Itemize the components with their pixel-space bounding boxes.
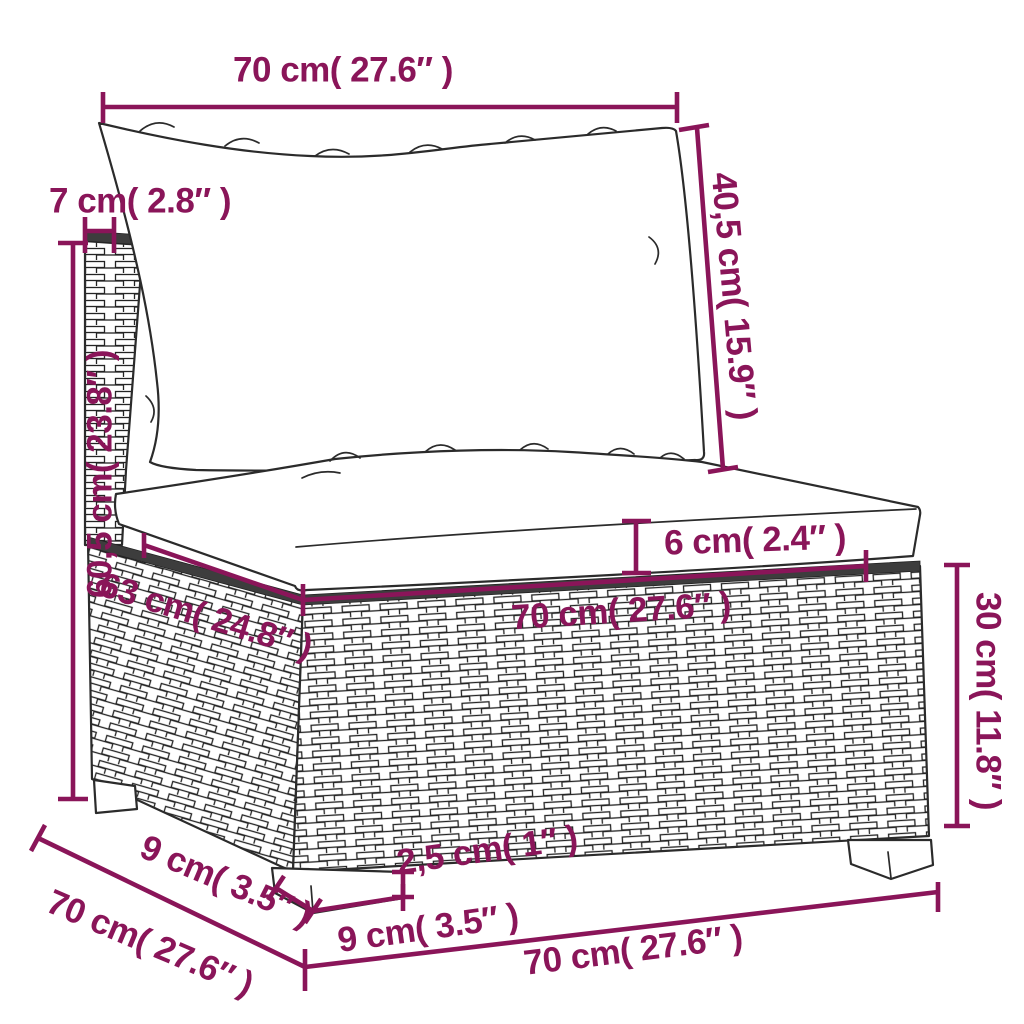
back-cushion [99, 123, 704, 471]
dim-label-back-width: 70 cm( 27.6″ ) [233, 53, 453, 88]
dim-back-width-line [103, 92, 677, 123]
dim-label-seat-cushion-thickness: 6 cm( 2.4″ ) [663, 519, 846, 560]
dim-base-height-line [944, 565, 970, 826]
dim-label-back-thickness: 7 cm( 2.8″ ) [49, 184, 231, 219]
leg-back-left [94, 780, 137, 813]
dimension-diagram: 70 cm( 27.6″ ) 7 cm( 2.8″ ) 40,5 cm( 15.… [0, 0, 1024, 1024]
dim-label-base-height: 30 cm( 11.8″ ) [971, 592, 1006, 810]
dim-label-total-height: 60,5 cm( 23.8″ ) [83, 350, 118, 598]
